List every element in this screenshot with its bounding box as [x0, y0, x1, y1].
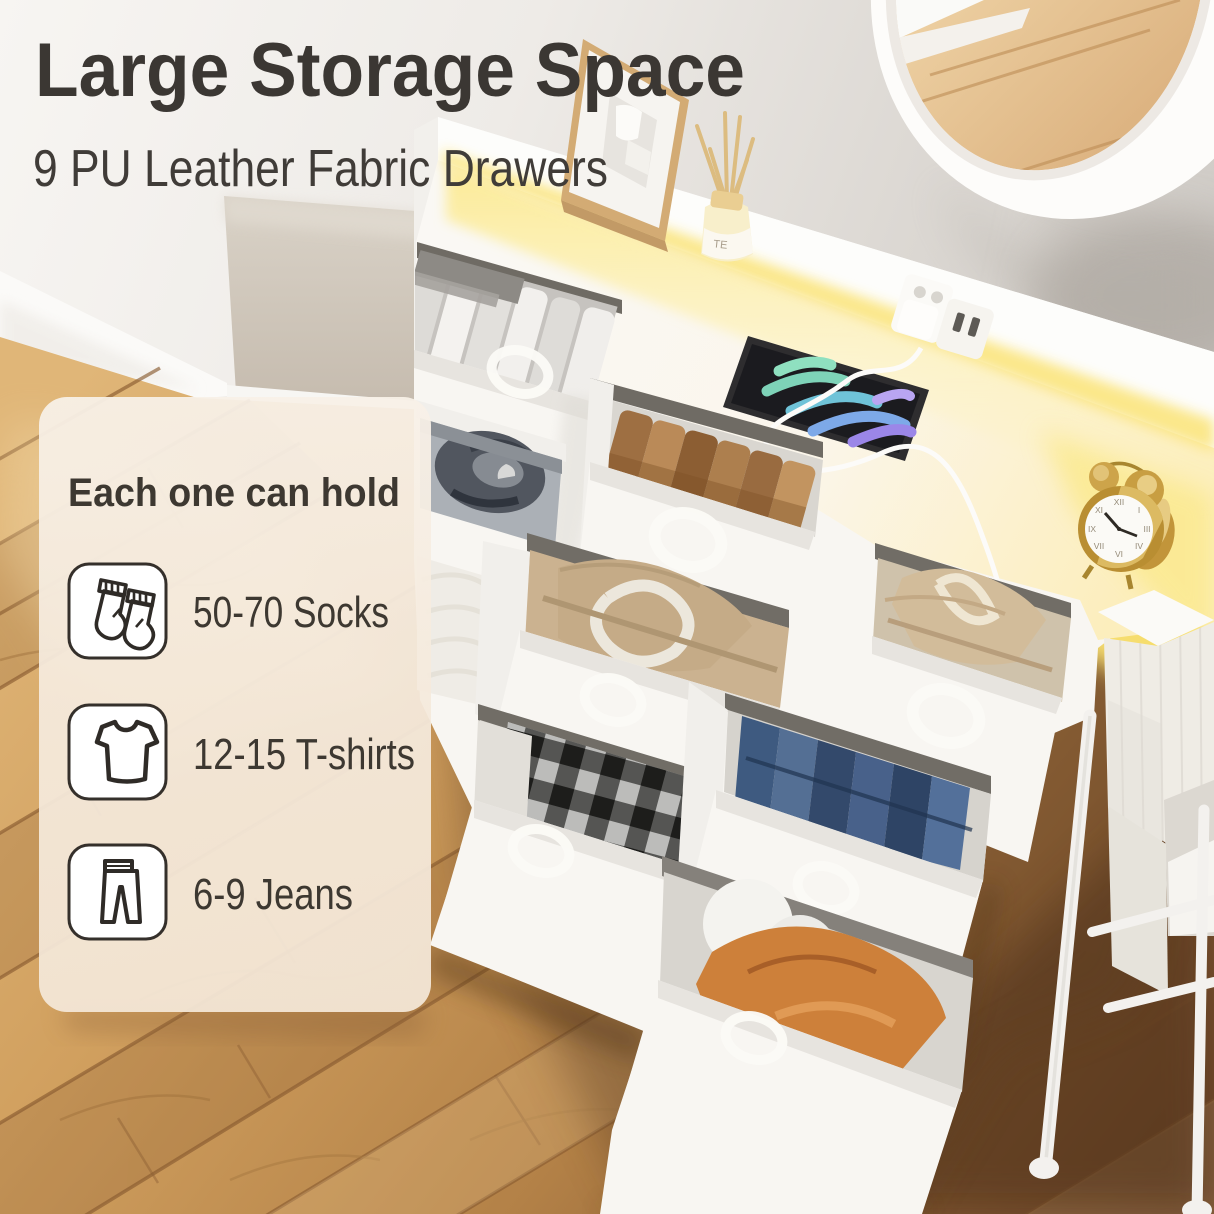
- svg-text:50-70 Socks: 50-70 Socks: [193, 588, 389, 637]
- svg-text:XI: XI: [1095, 505, 1103, 515]
- svg-text:III: III: [1143, 524, 1150, 534]
- svg-text:9 PU Leather Fabric Drawers: 9 PU Leather Fabric Drawers: [33, 140, 608, 198]
- svg-text:I: I: [1138, 505, 1140, 515]
- svg-text:XII: XII: [1114, 497, 1124, 507]
- svg-text:Each one can hold: Each one can hold: [68, 471, 400, 515]
- svg-text:VII: VII: [1094, 541, 1104, 551]
- svg-text:IV: IV: [1135, 541, 1143, 551]
- svg-text:6-9 Jeans: 6-9 Jeans: [193, 870, 353, 919]
- svg-text:12-15 T-shirts: 12-15 T-shirts: [193, 730, 415, 779]
- svg-text:Large Storage Space: Large Storage Space: [35, 28, 745, 113]
- svg-text:VI: VI: [1115, 549, 1123, 559]
- svg-text:IX: IX: [1088, 524, 1096, 534]
- svg-text:TE: TE: [713, 238, 728, 251]
